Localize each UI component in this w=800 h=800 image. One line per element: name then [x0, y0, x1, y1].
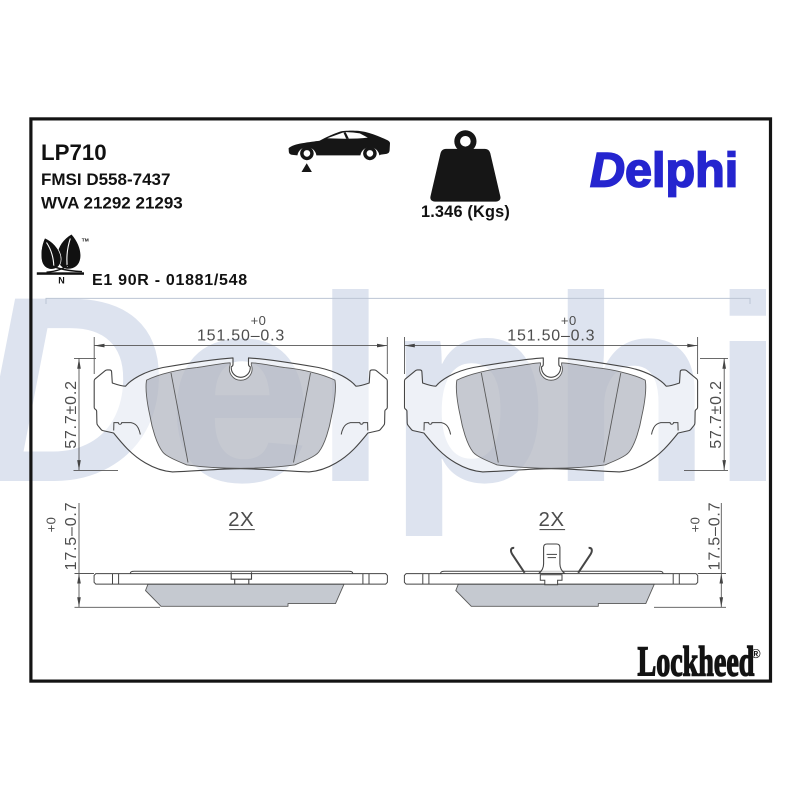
svg-text:FMSI D558-7437: FMSI D558-7437	[41, 170, 170, 189]
svg-text:151.50–0.3: 151.50–0.3	[197, 328, 285, 345]
svg-text:17.5–0.7: 17.5–0.7	[63, 502, 80, 571]
svg-text:17.5–0.7: 17.5–0.7	[706, 502, 723, 571]
svg-text:E1 90R - 01881/548: E1 90R - 01881/548	[92, 272, 248, 289]
svg-text:2X: 2X	[228, 508, 254, 531]
svg-text:+0: +0	[251, 313, 267, 328]
svg-text:2X: 2X	[538, 508, 564, 531]
svg-text:57.7±0.2: 57.7±0.2	[708, 380, 725, 449]
svg-text:Lockheed: Lockheed	[638, 638, 755, 685]
svg-text:+0: +0	[43, 517, 58, 533]
svg-text:Delphi: Delphi	[590, 144, 738, 198]
svg-text:N: N	[58, 275, 65, 285]
svg-text:WVA 21292 21293: WVA 21292 21293	[41, 194, 183, 213]
svg-text:TM: TM	[82, 237, 89, 243]
svg-text:1.346 (Kgs): 1.346 (Kgs)	[421, 203, 510, 221]
svg-text:®: ®	[751, 646, 761, 661]
svg-text:151.50–0.3: 151.50–0.3	[507, 328, 595, 345]
svg-text:+0: +0	[561, 313, 577, 328]
svg-text:LP710: LP710	[41, 140, 107, 165]
svg-text:57.7±0.2: 57.7±0.2	[63, 380, 80, 449]
svg-text:+0: +0	[688, 517, 703, 533]
